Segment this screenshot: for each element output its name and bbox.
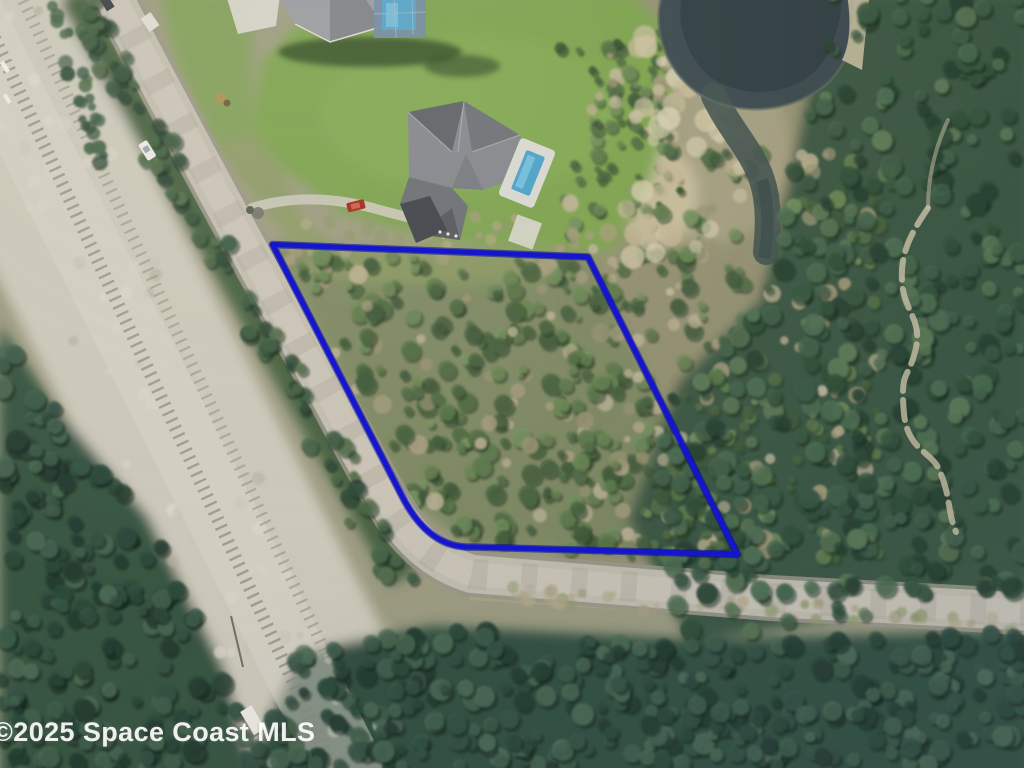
aerial-photo-canvas [0, 0, 1024, 768]
sunlight-tint [0, 0, 1024, 768]
mls-watermark: ©2025 Space Coast MLS [0, 718, 315, 748]
aerial-photo: ©2025 Space Coast MLS [0, 0, 1024, 768]
